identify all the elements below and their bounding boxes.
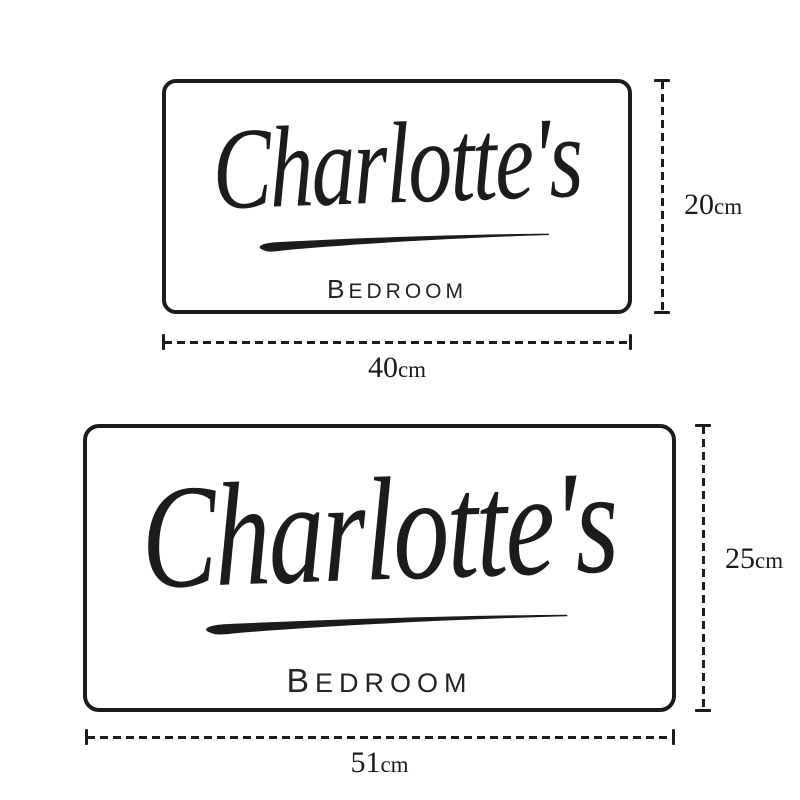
height-dimension-line-small — [654, 79, 670, 314]
sign-large: Charlotte's BEDROOM — [83, 424, 676, 712]
dimension-value: 20 — [684, 188, 714, 221]
dimension-unit: cm — [398, 357, 426, 382]
sign-small: Charlotte's BEDROOM — [162, 79, 632, 314]
sign-name-wrap: Charlotte's — [87, 436, 672, 632]
width-dimension-label-large: 51cm — [83, 748, 676, 778]
underline-swoosh-graphic — [199, 614, 571, 636]
width-dimension-line-small — [162, 334, 632, 350]
dimension-end-cap — [695, 709, 711, 712]
product-size-diagram: Charlotte's BEDROOM 20cm 40cm Charlotte'… — [0, 0, 800, 800]
dimension-end-cap — [672, 729, 675, 745]
dimension-unit: cm — [380, 752, 408, 777]
dimension-value: 40 — [368, 351, 398, 384]
dimension-unit: cm — [755, 548, 783, 573]
underline-swoosh-graphic — [254, 233, 552, 253]
sign-name-wrap: Charlotte's — [166, 89, 628, 247]
sign-name-text: Charlotte's — [210, 101, 582, 230]
dashed-line — [661, 81, 664, 312]
sign-room-label: BEDROOM — [87, 665, 672, 699]
dimension-end-cap — [629, 334, 632, 350]
sign-name-text: Charlotte's — [139, 448, 619, 612]
height-dimension-line-large — [695, 424, 711, 712]
dimension-unit: cm — [714, 194, 742, 219]
sign-room-label: BEDROOM — [166, 276, 628, 302]
dimension-value: 51 — [350, 746, 380, 779]
width-dimension-line-large — [85, 729, 675, 745]
dimension-end-cap — [654, 311, 670, 314]
dashed-line — [164, 341, 630, 344]
dimension-value: 25 — [725, 542, 755, 575]
height-dimension-label-small: 20cm — [684, 79, 742, 314]
dashed-line — [87, 736, 673, 739]
dashed-line — [702, 426, 705, 710]
height-dimension-label-large: 25cm — [725, 424, 783, 712]
width-dimension-label-small: 40cm — [162, 353, 632, 383]
